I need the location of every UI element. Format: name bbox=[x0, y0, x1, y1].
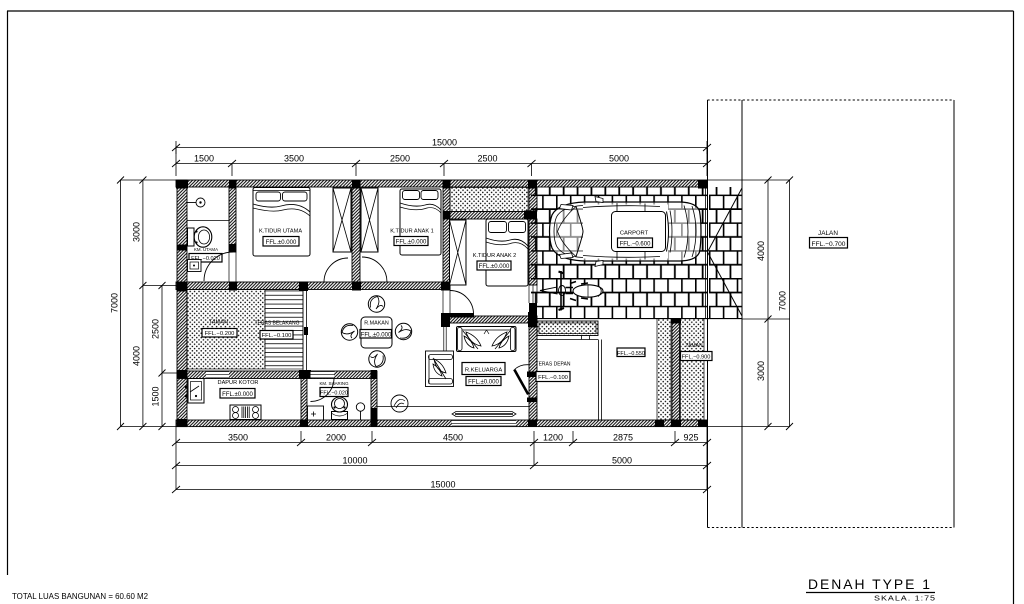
svg-text:3500: 3500 bbox=[228, 433, 248, 443]
svg-text:KM. UTAMA: KM. UTAMA bbox=[194, 247, 218, 252]
svg-text:TAMAN: TAMAN bbox=[209, 320, 228, 326]
svg-text:K.TIDUR ANAK 2: K.TIDUR ANAK 2 bbox=[473, 253, 517, 259]
svg-text:TERAS DEPAN: TERAS DEPAN bbox=[536, 362, 571, 368]
svg-text:1500: 1500 bbox=[151, 386, 161, 406]
svg-text:7000: 7000 bbox=[110, 293, 120, 313]
svg-text:3500: 3500 bbox=[284, 154, 304, 164]
svg-text:FFL.−0.200: FFL.−0.200 bbox=[205, 331, 235, 337]
svg-text:R.KELUARGA: R.KELUARGA bbox=[465, 367, 503, 373]
svg-text:JALAN: JALAN bbox=[818, 230, 838, 237]
svg-text:TERAS BELAKANG: TERAS BELAKANG bbox=[254, 321, 299, 327]
svg-text:2500: 2500 bbox=[477, 154, 497, 164]
svg-text:2000: 2000 bbox=[326, 433, 346, 443]
svg-text:FFL.−0.550: FFL.−0.550 bbox=[617, 351, 645, 357]
svg-text:5000: 5000 bbox=[609, 154, 629, 164]
svg-text:15000: 15000 bbox=[432, 138, 457, 148]
svg-text:FFL.−0.100: FFL.−0.100 bbox=[262, 333, 292, 339]
svg-text:FFL.−0.700: FFL.−0.700 bbox=[812, 241, 846, 248]
svg-text:4000: 4000 bbox=[132, 346, 142, 366]
svg-text:2500: 2500 bbox=[151, 319, 161, 339]
svg-text:1200: 1200 bbox=[543, 433, 563, 443]
svg-text:R.MAKAN: R.MAKAN bbox=[364, 321, 389, 327]
svg-text:4000: 4000 bbox=[756, 241, 766, 261]
svg-text:7000: 7000 bbox=[778, 291, 788, 311]
svg-text:FFL.±0.000: FFL.±0.000 bbox=[361, 332, 392, 338]
svg-text:3000: 3000 bbox=[756, 361, 766, 381]
svg-text:TAMAN: TAMAN bbox=[685, 343, 703, 349]
svg-text:DAPUR KOTOR: DAPUR KOTOR bbox=[218, 380, 259, 386]
svg-text:5000: 5000 bbox=[612, 456, 632, 466]
svg-text:FFL.±0.000: FFL.±0.000 bbox=[396, 240, 427, 246]
svg-text:10000: 10000 bbox=[342, 456, 367, 466]
svg-text:FFL.−0.020: FFL.−0.020 bbox=[320, 391, 348, 397]
svg-text:FFL.−0.600: FFL.−0.600 bbox=[620, 241, 652, 247]
svg-text:FFL.±0.000: FFL.±0.000 bbox=[222, 392, 253, 398]
svg-text:CARPORT: CARPORT bbox=[620, 231, 649, 237]
svg-text:SKALA. 1:75: SKALA. 1:75 bbox=[874, 594, 936, 603]
svg-text:2500: 2500 bbox=[390, 154, 410, 164]
svg-text:K.TIDUR UTAMA: K.TIDUR UTAMA bbox=[259, 229, 302, 235]
svg-text:3000: 3000 bbox=[132, 222, 142, 242]
svg-text:DENAH TYPE 1: DENAH TYPE 1 bbox=[808, 576, 932, 592]
svg-text:4500: 4500 bbox=[443, 433, 463, 443]
svg-text:15000: 15000 bbox=[430, 480, 455, 490]
svg-text:FFL.−0.100: FFL.−0.100 bbox=[538, 375, 568, 381]
svg-text:FFL.±0.000: FFL.±0.000 bbox=[266, 240, 297, 246]
svg-text:KM. SHARING: KM. SHARING bbox=[319, 381, 349, 386]
svg-text:FFL.±0.000: FFL.±0.000 bbox=[479, 264, 510, 270]
svg-text:1500: 1500 bbox=[194, 154, 214, 164]
svg-text:K.TIDUR ANAK 1: K.TIDUR ANAK 1 bbox=[390, 229, 434, 235]
svg-text:925: 925 bbox=[683, 433, 698, 443]
svg-text:FFL.−0.900: FFL.−0.900 bbox=[682, 355, 711, 361]
svg-text:TOTAL LUAS BANGUNAN = 60.60 M2: TOTAL LUAS BANGUNAN = 60.60 M2 bbox=[12, 592, 148, 601]
svg-text:FFL.±0.000: FFL.±0.000 bbox=[468, 380, 499, 386]
svg-text:2875: 2875 bbox=[613, 433, 633, 443]
